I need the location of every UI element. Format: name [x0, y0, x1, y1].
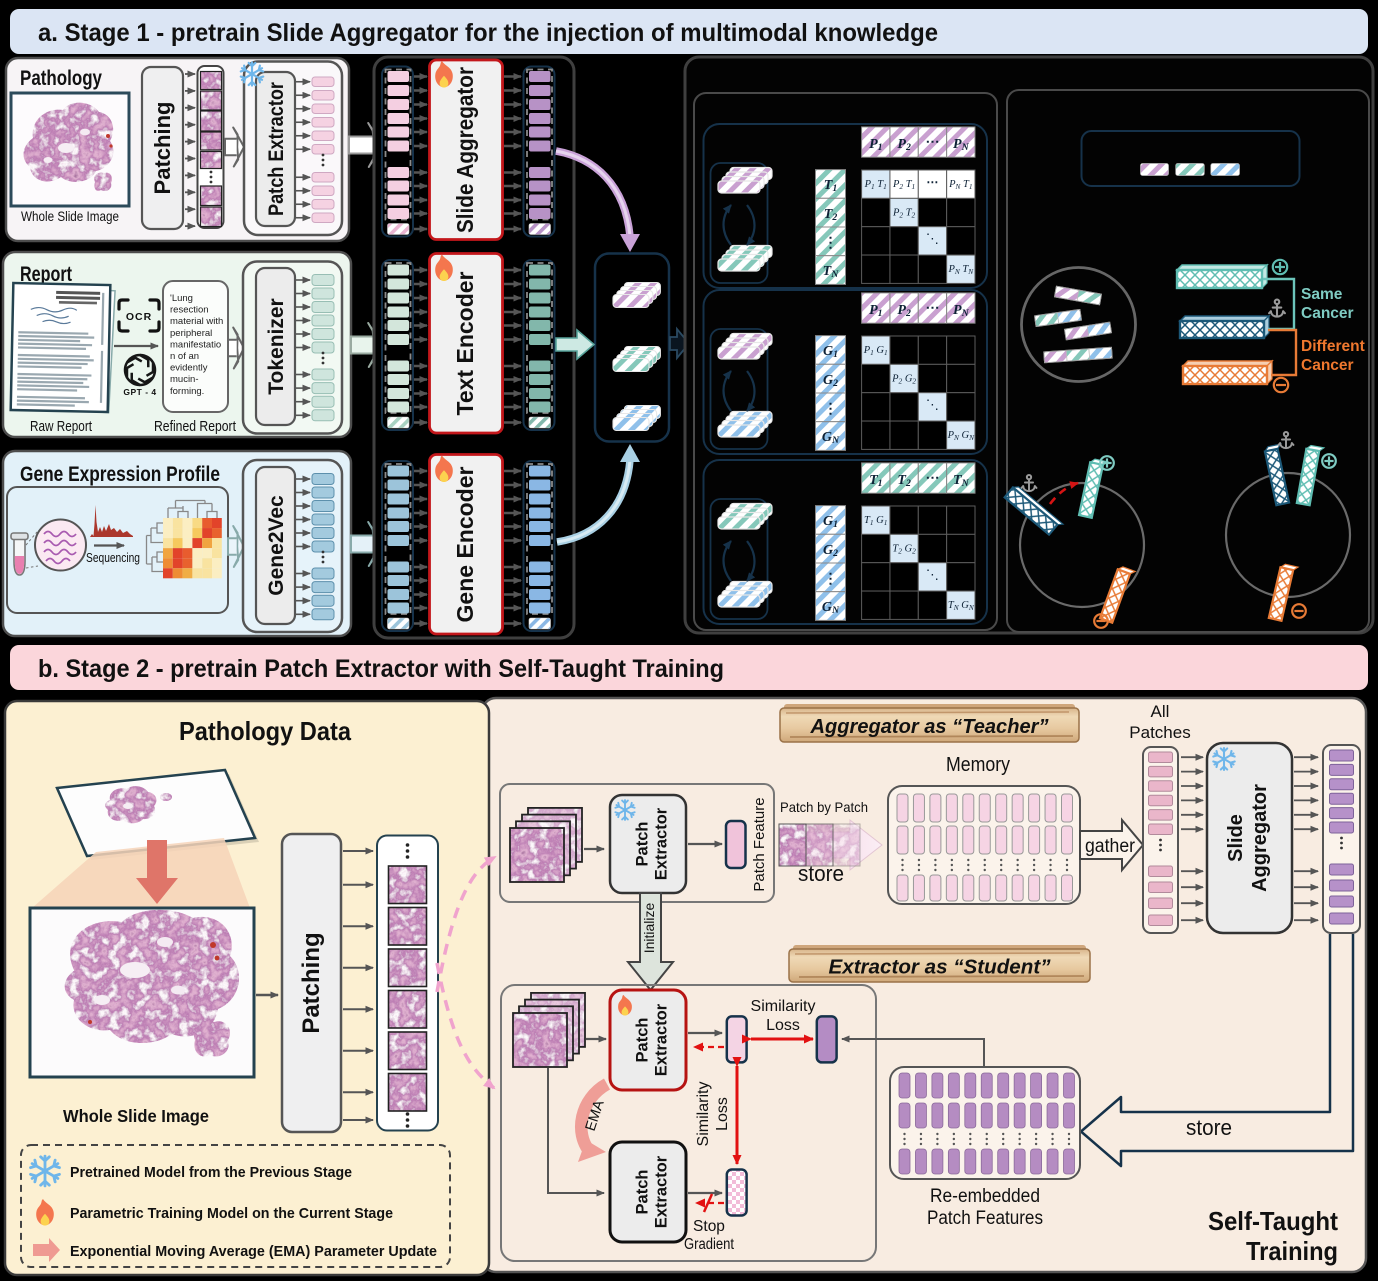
svg-text:⋯: ⋯ [926, 135, 940, 150]
svg-text:store: store [1186, 1115, 1232, 1140]
svg-text:TN GN: TN GN [948, 600, 975, 612]
svg-text:P1 T1: P1 T1 [864, 179, 887, 191]
svg-text:material with: material with [170, 316, 223, 327]
svg-text:PN GN: PN GN [947, 430, 976, 442]
svg-text:Tokenizer: Tokenizer [265, 298, 288, 394]
svg-text:⋮: ⋮ [824, 402, 838, 417]
svg-text:'Lung: 'Lung [170, 293, 193, 304]
svg-text:Patching: Patching [298, 932, 325, 1033]
svg-text:Patches: Patches [1129, 723, 1190, 742]
svg-text:Pretrained Model from the Prev: Pretrained Model from the Previous Stage [70, 1164, 352, 1181]
svg-text:Re-embedded: Re-embedded [930, 1186, 1040, 1207]
svg-text:Self-Taught: Self-Taught [1208, 1206, 1338, 1236]
svg-text:mucin-: mucin- [170, 374, 199, 385]
svg-text:peripheral: peripheral [170, 328, 212, 339]
svg-text:manifestatio: manifestatio [170, 339, 221, 350]
svg-text:⋯: ⋯ [926, 471, 940, 486]
svg-text:⋱: ⋱ [926, 397, 939, 412]
svg-text:Patch Features: Patch Features [927, 1208, 1043, 1229]
svg-text:PN T1: PN T1 [948, 179, 972, 191]
svg-text:Cancer: Cancer [1301, 305, 1354, 322]
svg-text:Slide Aggregator: Slide Aggregator [452, 67, 478, 233]
svg-text:Initialize: Initialize [641, 903, 657, 954]
svg-text:Patching: Patching [150, 102, 175, 195]
svg-text:gather: gather [1085, 836, 1136, 857]
svg-text:Gene2Vec: Gene2Vec [265, 495, 288, 596]
svg-text:Gradient: Gradient [684, 1236, 735, 1253]
svg-text:resection: resection [170, 305, 209, 316]
svg-text:Whole Slide Image: Whole Slide Image [21, 208, 119, 224]
svg-text:Stop: Stop [693, 1218, 725, 1235]
svg-text:⋯: ⋯ [926, 301, 940, 316]
svg-text:Cancer: Cancer [1301, 357, 1354, 374]
svg-text:All: All [1151, 702, 1170, 721]
svg-text:Training: Training [1246, 1236, 1338, 1266]
svg-text:Pathology Data: Pathology Data [179, 716, 351, 746]
svg-text:a. Stage 1 - pretrain Slide Ag: a. Stage 1 - pretrain Slide Aggregator f… [38, 19, 938, 47]
svg-text:Whole Slide Image: Whole Slide Image [63, 1106, 209, 1126]
svg-text:PN TN: PN TN [947, 264, 974, 276]
svg-text:⋮: ⋮ [824, 572, 838, 587]
svg-text:P2 G2: P2 G2 [891, 373, 916, 385]
svg-text:Patch Extractor: Patch Extractor [265, 82, 288, 216]
svg-text:⋱: ⋱ [926, 567, 939, 582]
svg-text:Same: Same [1301, 286, 1343, 303]
svg-text:b. Stage 2 - pretrain Patch Ex: b. Stage 2 - pretrain Patch Extractor wi… [38, 655, 724, 683]
svg-text:n of an: n of an [170, 351, 199, 362]
svg-text:⋯: ⋯ [926, 175, 938, 189]
svg-text:T2 G2: T2 G2 [892, 543, 916, 555]
svg-text:Sequencing: Sequencing [86, 551, 140, 565]
svg-text:Text Encoder: Text Encoder [452, 271, 478, 415]
svg-text:P2 T2: P2 T2 [892, 207, 916, 219]
svg-text:Gene Encoder: Gene Encoder [452, 466, 478, 622]
svg-text:P2 T1: P2 T1 [892, 179, 915, 191]
svg-text:Raw Report: Raw Report [30, 419, 92, 435]
svg-text:⋱: ⋱ [926, 231, 939, 246]
svg-text:Memory: Memory [946, 754, 1010, 776]
svg-text:P1 G1: P1 G1 [863, 345, 888, 357]
svg-text:Patch Feature: Patch Feature [751, 797, 768, 891]
svg-text:store: store [798, 861, 844, 886]
svg-text:Pathology: Pathology [20, 67, 102, 90]
svg-text:forming.: forming. [170, 386, 204, 397]
svg-text:Loss: Loss [766, 1017, 800, 1034]
svg-text:GPT - 4: GPT - 4 [123, 387, 156, 397]
svg-text:Exponential Moving Average (EM: Exponential Moving Average (EMA) Paramet… [70, 1243, 437, 1260]
svg-text:⋮: ⋮ [824, 236, 838, 251]
svg-text:OCR: OCR [126, 311, 152, 323]
svg-text:Extractor as “Student”: Extractor as “Student” [829, 957, 1051, 979]
svg-text:Gene Expression Profile: Gene Expression Profile [20, 463, 220, 486]
svg-text:Refined Report: Refined Report [154, 419, 236, 435]
svg-text:Similarity: Similarity [751, 998, 816, 1015]
svg-text:Different: Different [1301, 338, 1365, 355]
svg-text:T1 G1: T1 G1 [864, 515, 887, 527]
svg-text:evidently: evidently [170, 363, 208, 374]
svg-text:Aggregator as “Teacher”: Aggregator as “Teacher” [809, 716, 1048, 738]
svg-text:Parametric Training Model on t: Parametric Training Model on the Current… [70, 1205, 393, 1222]
svg-text:Patch by Patch: Patch by Patch [780, 799, 868, 815]
